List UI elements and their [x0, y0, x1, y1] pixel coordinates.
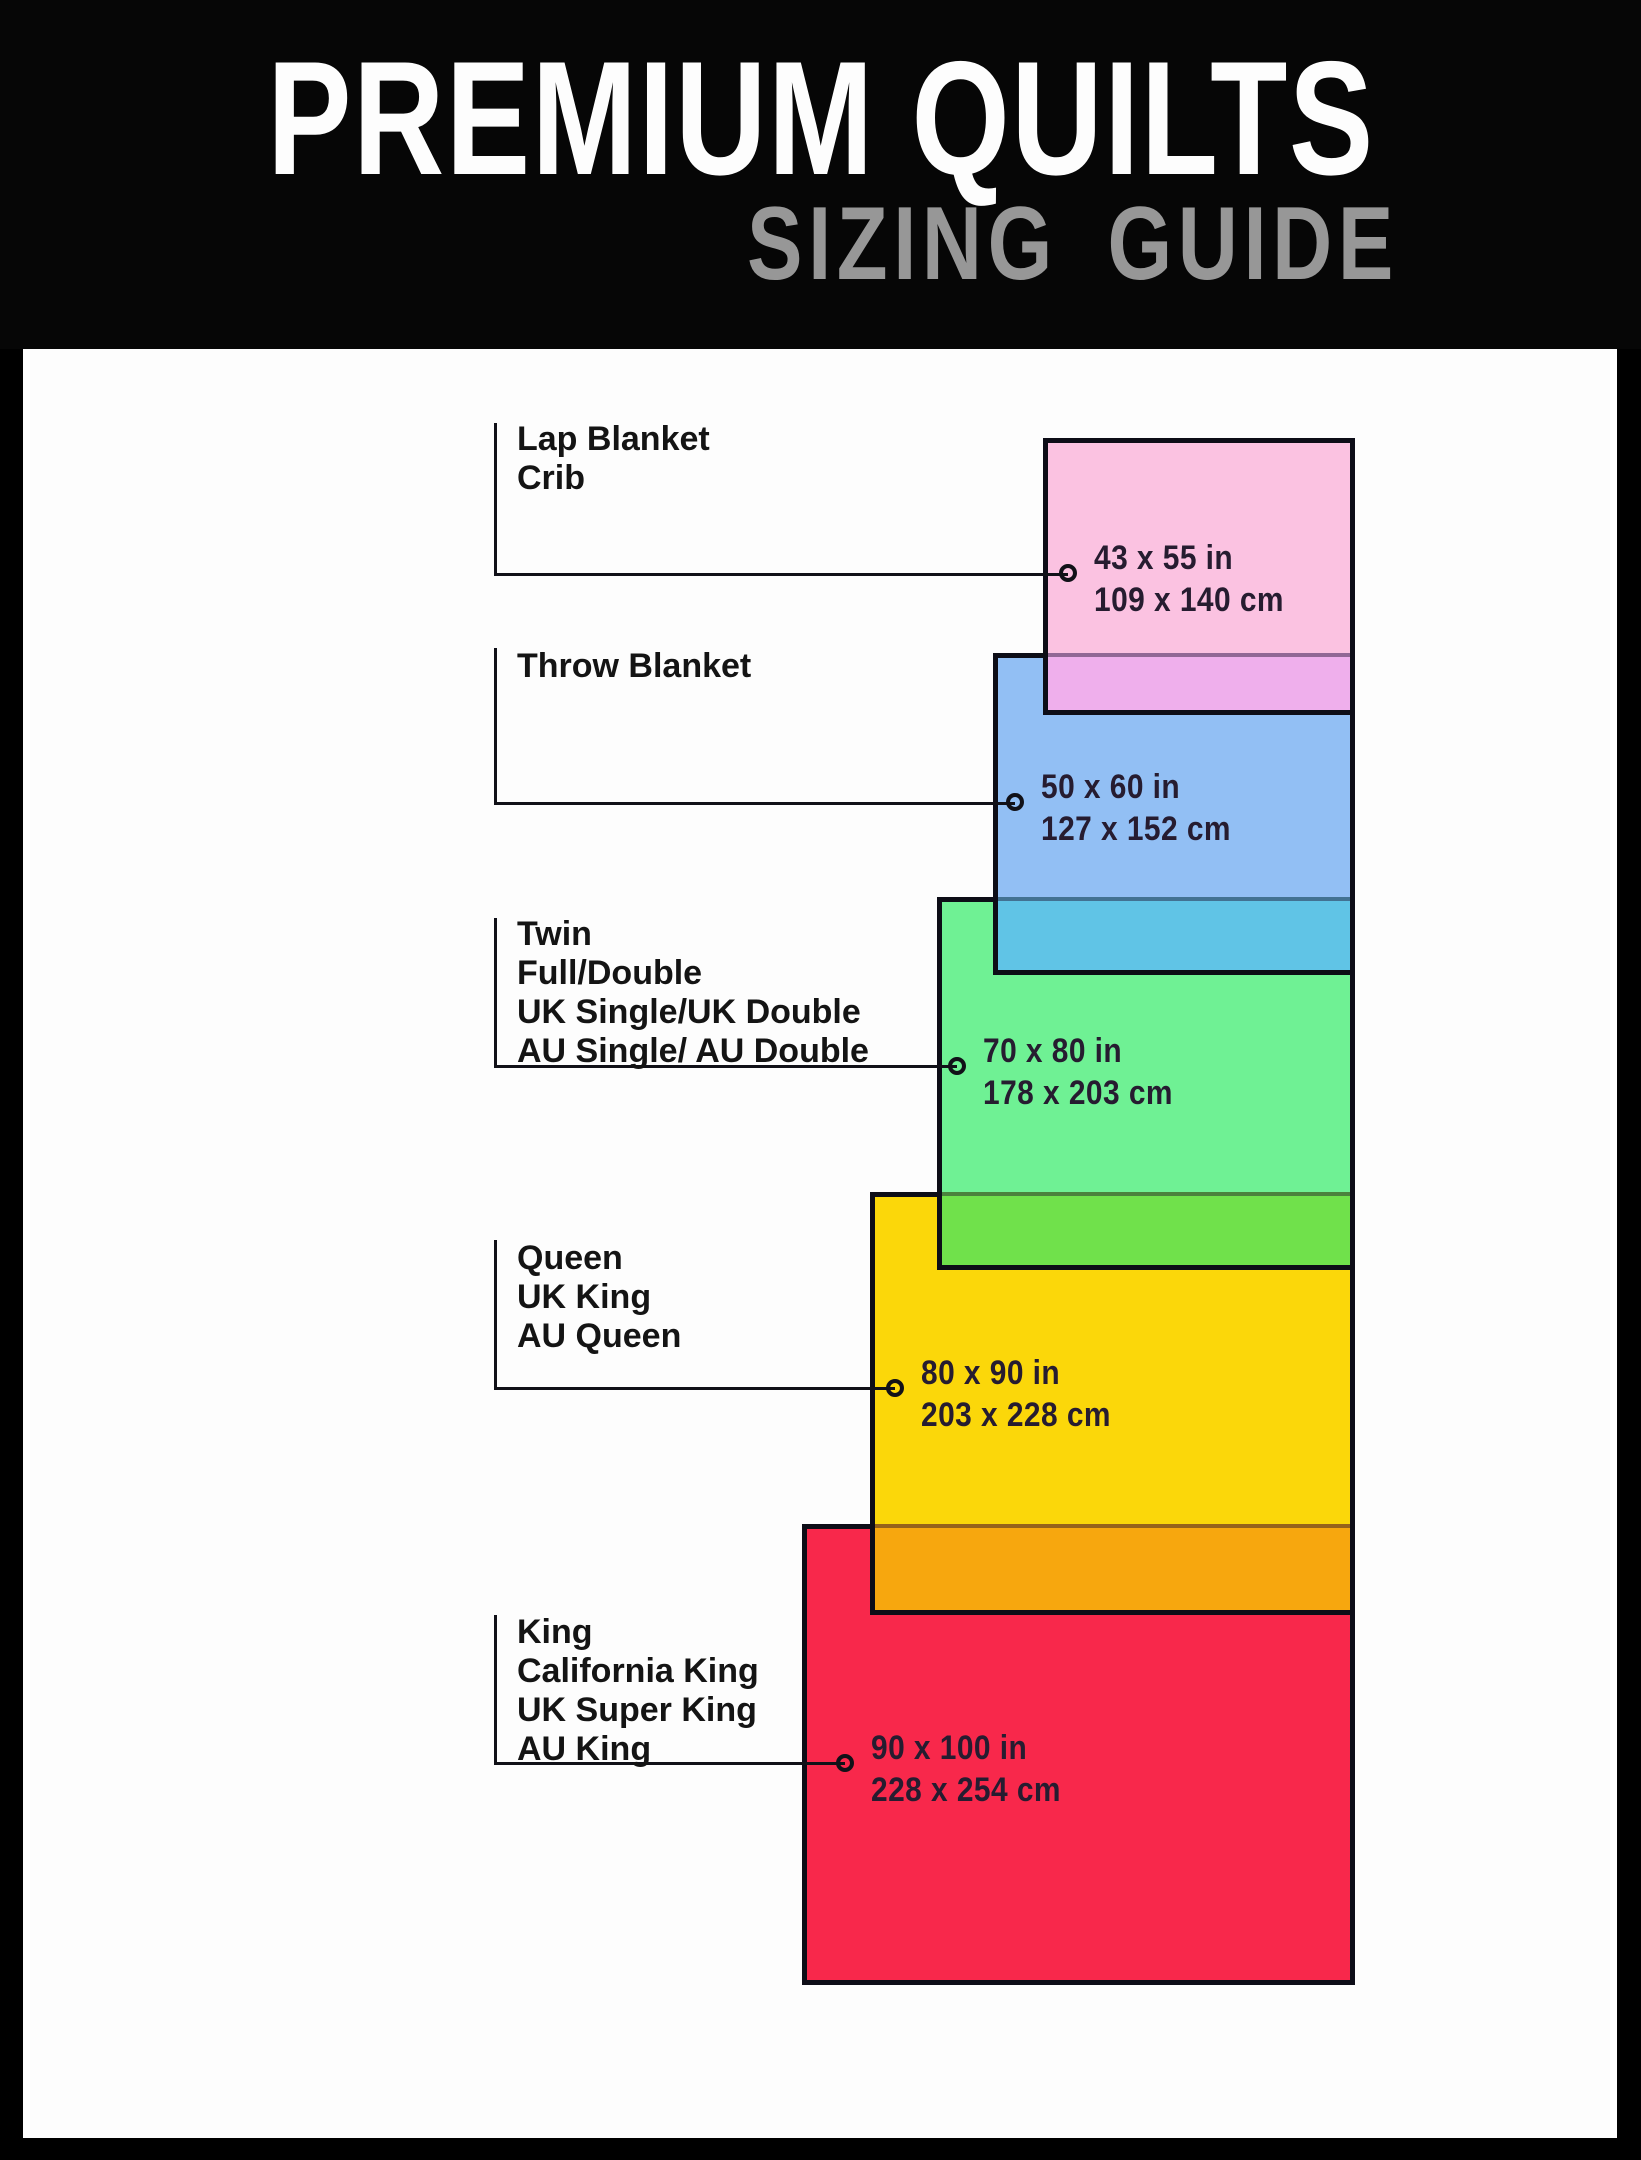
lap-bracket-hline	[494, 573, 1068, 576]
page-subtitle: SIZING GUIDE	[747, 192, 1399, 296]
queen-label-line: AU Queen	[517, 1317, 681, 1356]
lap-callout-dot	[1059, 564, 1077, 582]
king-label-line: California King	[517, 1652, 759, 1691]
twin-bracket-vline	[494, 918, 497, 1068]
queen-dimensions: 80 x 90 in 203 x 228 cm	[921, 1352, 1111, 1436]
throw-dimensions-cm: 127 x 152 cm	[1041, 808, 1231, 850]
throw-callout-dot	[1006, 793, 1024, 811]
king-dimensions-cm: 228 x 254 cm	[871, 1769, 1061, 1811]
throw-bracket-hline	[494, 802, 1015, 805]
king-dimensions-in: 90 x 100 in	[871, 1727, 1061, 1769]
queen-label-line: UK King	[517, 1278, 681, 1317]
queen-bracket-hline	[494, 1387, 895, 1390]
header-band: PREMIUM QUILTS SIZING GUIDE	[0, 0, 1641, 349]
twin-label: Twin Full/Double UK Single/UK Double AU …	[517, 915, 869, 1071]
king-label-line: King	[517, 1613, 759, 1652]
throw-bracket-vline	[494, 648, 497, 805]
twin-over-queen-overlap	[942, 1192, 1350, 1265]
twin-label-line: Twin	[517, 915, 869, 954]
king-label-line: AU King	[517, 1730, 759, 1769]
page-title: PREMIUM QUILTS	[267, 38, 1375, 200]
king-callout-dot	[836, 1754, 854, 1772]
lap-bracket-vline	[494, 423, 497, 576]
queen-label-line: Queen	[517, 1239, 681, 1278]
twin-dimensions-in: 70 x 80 in	[983, 1030, 1173, 1072]
lap-dimensions-cm: 109 x 140 cm	[1094, 579, 1284, 621]
twin-dimensions: 70 x 80 in 178 x 203 cm	[983, 1030, 1173, 1114]
queen-label: Queen UK King AU Queen	[517, 1239, 681, 1356]
lap-dimensions-in: 43 x 55 in	[1094, 537, 1284, 579]
queen-dimensions-in: 80 x 90 in	[921, 1352, 1111, 1394]
throw-label-line: Throw Blanket	[517, 647, 751, 686]
twin-label-line: AU Single/ AU Double	[517, 1032, 869, 1071]
twin-callout-dot	[948, 1057, 966, 1075]
king-label-line: UK Super King	[517, 1691, 759, 1730]
lap-label-line: Crib	[517, 459, 710, 498]
twin-label-line: Full/Double	[517, 954, 869, 993]
throw-dimensions-in: 50 x 60 in	[1041, 766, 1231, 808]
twin-dimensions-cm: 178 x 203 cm	[983, 1072, 1173, 1114]
king-bracket-vline	[494, 1615, 497, 1765]
lap-label: Lap Blanket Crib	[517, 420, 710, 498]
queen-over-king-overlap	[875, 1524, 1350, 1610]
throw-label: Throw Blanket	[517, 647, 751, 686]
queen-bracket-vline	[494, 1240, 497, 1390]
king-label: King California King UK Super King AU Ki…	[517, 1613, 759, 1769]
queen-callout-dot	[886, 1379, 904, 1397]
lap-over-throw-overlap	[1048, 653, 1350, 710]
lap-label-line: Lap Blanket	[517, 420, 710, 459]
lap-dimensions: 43 x 55 in 109 x 140 cm	[1094, 537, 1284, 621]
queen-dimensions-cm: 203 x 228 cm	[921, 1394, 1111, 1436]
twin-label-line: UK Single/UK Double	[517, 993, 869, 1032]
throw-dimensions: 50 x 60 in 127 x 152 cm	[1041, 766, 1231, 850]
king-dimensions: 90 x 100 in 228 x 254 cm	[871, 1727, 1061, 1811]
throw-over-twin-overlap	[998, 897, 1350, 970]
